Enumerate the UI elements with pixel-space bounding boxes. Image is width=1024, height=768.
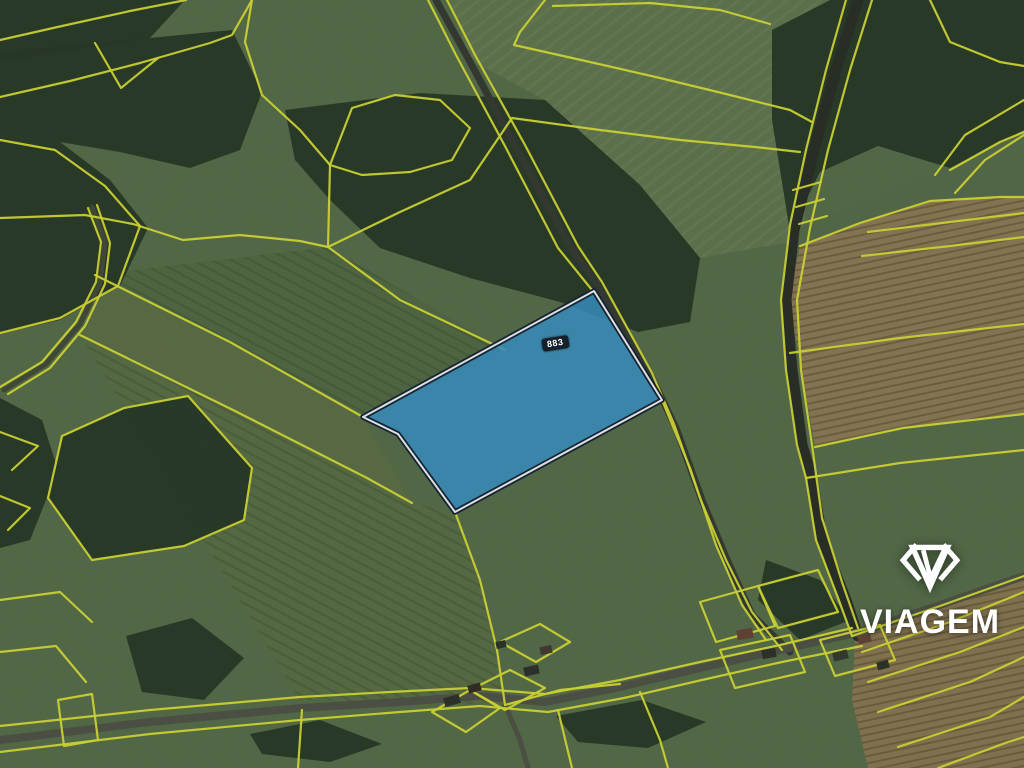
viagem-diamond-icon bbox=[896, 540, 964, 604]
cadastral-satellite-map[interactable] bbox=[0, 0, 1024, 768]
map-viewport: 883 VIAGEM bbox=[0, 0, 1024, 768]
viagem-logo-text: VIAGEM bbox=[846, 604, 1014, 640]
photo-grain-overlay bbox=[0, 0, 1024, 768]
viagem-logo: VIAGEM bbox=[846, 540, 1014, 640]
